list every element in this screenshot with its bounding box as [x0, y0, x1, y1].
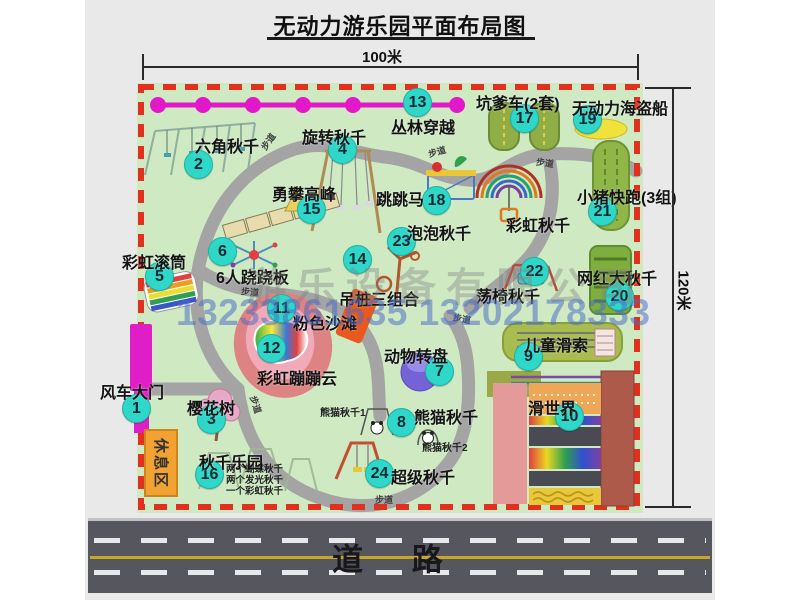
marker-label-12: 彩虹蹦蹦云: [257, 365, 337, 389]
marker-circle-18: 18: [422, 186, 451, 215]
width-dimension-label: 100米: [362, 46, 402, 67]
dimension-tick: [645, 506, 691, 508]
dimension-tick: [637, 54, 639, 80]
marker-label-10: 滑世界: [528, 395, 576, 419]
dimension-tick: [142, 54, 144, 80]
swing-park-detail-line: 两个发光秋千: [226, 475, 283, 486]
marker-label-2: 六角秋千: [195, 133, 259, 157]
marker-label-14: 吊桩三组合: [339, 286, 419, 310]
rainbow-swing-label: 彩虹秋千: [506, 212, 570, 236]
marker-label-9: 儿童滑索: [524, 332, 588, 356]
path-label: 步道: [240, 284, 259, 299]
marker-label-8: 熊猫秋千: [414, 404, 478, 428]
marker-label-24: 超级秋千: [391, 464, 455, 488]
panda-swing-1-label: 熊猫秋千1: [320, 404, 366, 419]
marker-label-5: 彩虹滚筒: [122, 249, 186, 273]
height-dimension-label: 120米: [674, 270, 695, 310]
rest-area-box: 休息区: [144, 429, 178, 497]
marker-label-1: 风车大门: [100, 379, 164, 403]
path-label: 步道: [535, 155, 555, 170]
playground-plan-screenshot: 休息区 两个蝴蝶秋千两个发光秋千一个彩虹秋千 无动力游乐园平面布局图 100米 …: [0, 0, 800, 600]
marker-label-7: 动物转盘: [384, 343, 448, 367]
marker-label-11: 粉色沙滩: [293, 310, 357, 334]
slide-world-illustration: [487, 371, 634, 506]
marker-circle-24: 24: [365, 459, 394, 488]
marker-label-3: 樱花树: [187, 395, 235, 419]
marker-circle-13: 13: [403, 88, 432, 117]
rest-area-label: 休息区: [151, 437, 172, 488]
marker-label-15: 勇攀高峰: [272, 181, 336, 205]
marker-label-21: 小猪快跑(3组): [577, 184, 677, 208]
marker-circle-14: 14: [343, 245, 372, 274]
swing-park-detail-line: 一个彩虹秋千: [226, 486, 283, 497]
marker-label-17: 坑爹车(2套): [476, 90, 560, 114]
marker-circle-22: 22: [520, 257, 549, 286]
road: 道 路: [88, 518, 712, 593]
marker-label-20: 网红大秋千: [577, 265, 657, 289]
marker-label-13: 丛林穿越: [391, 114, 455, 138]
marker-label-22: 荡椅秋千: [476, 283, 540, 307]
title-underline: [267, 37, 535, 40]
marker-circle-12: 12: [257, 334, 286, 363]
panda-swing-2-label: 熊猫秋千2: [422, 439, 468, 454]
dimension-tick: [645, 87, 691, 89]
marker-label-4: 旋转秋千: [302, 124, 366, 148]
marker-circle-6: 6: [208, 237, 237, 266]
marker-label-23: 泡泡秋千: [407, 220, 471, 244]
path-label: 步道: [375, 493, 393, 506]
marker-label-19: 无动力海盗船: [572, 95, 668, 119]
marker-label-16: 秋千乐园: [199, 449, 263, 473]
marker-circle-11: 11: [267, 294, 296, 323]
marker-circle-8: 8: [387, 408, 416, 437]
marker-label-18: 跳跳马: [376, 186, 424, 210]
road-label: 道 路: [332, 535, 463, 580]
